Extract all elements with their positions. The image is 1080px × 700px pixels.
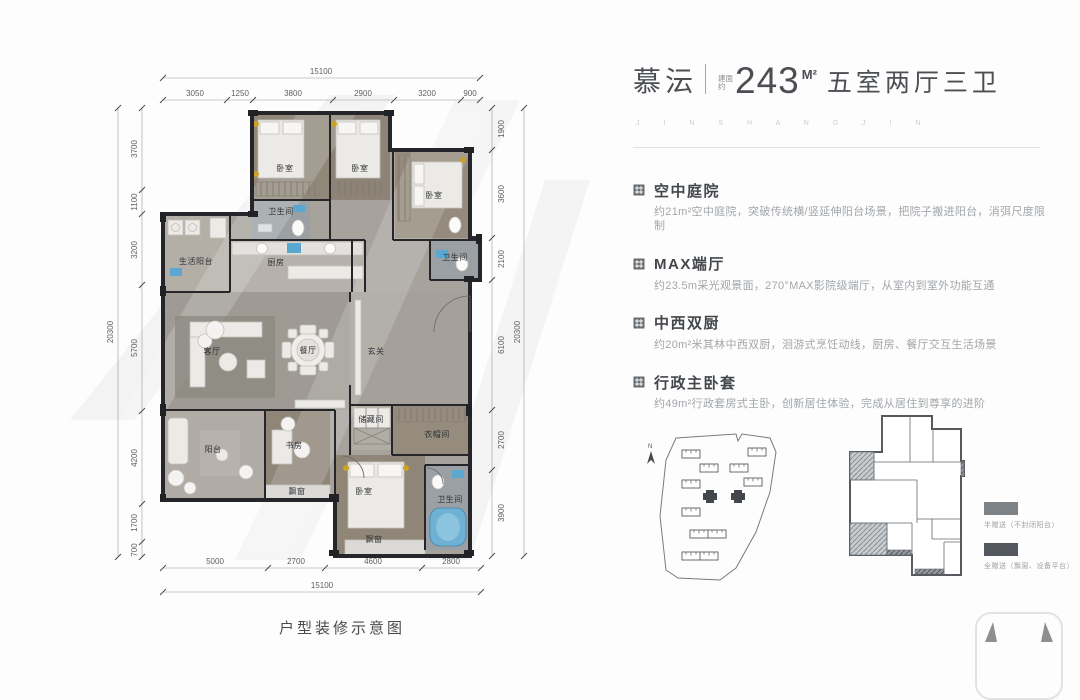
room-label: 书房 <box>286 440 303 450</box>
feature-desc: 约21m²空中庭院，突破传统横/竖延伸阳台场景，把院子搬进阳台，消弭尺度限制 <box>654 205 1053 234</box>
floorplan-drawing: 卧室 卧室 卧室 卫生间 生活阳台 厨房 卫生间 客厅 餐厅 玄关 储藏间 衣帽… <box>60 40 630 620</box>
unit-header: 慕沄 建面约 243 M² 五室两厅三卫 <box>633 64 1001 96</box>
legend-swatch-full <box>984 543 1018 556</box>
room-label: 阳台 <box>205 444 222 454</box>
dim-label: 4200 <box>130 449 139 467</box>
room-label: 客厅 <box>204 346 221 356</box>
site-buildings <box>682 448 766 560</box>
feature-title: MAX端厅 <box>654 253 725 274</box>
legend-label: 全赠送（飘窗、设备平台） <box>984 561 1080 571</box>
section-divider <box>633 147 1040 148</box>
dim-label: 1100 <box>130 193 139 211</box>
room-label: 飘窗 <box>366 534 383 544</box>
dim-label: 3900 <box>497 504 506 522</box>
legend-item: 半赠送（不封闭阳台） <box>984 502 1080 530</box>
room-label: 厨房 <box>268 257 285 267</box>
feature-title: 行政主卧套 <box>654 372 737 393</box>
feature-item: 空中庭院 约21m²空中庭院，突破传统横/竖延伸阳台场景，把院子搬进阳台，消弭尺… <box>633 180 1053 234</box>
feature-list: 空中庭院 约21m²空中庭院，突破传统横/竖延伸阳台场景，把院子搬进阳台，消弭尺… <box>633 180 1053 431</box>
dim-label: 3200 <box>418 89 436 98</box>
feature-item: 中西双厨 约20m²米其林中西双厨，洄游式烹饪动线，厨房、餐厅交互生活场景 <box>633 313 1053 352</box>
room-label: 卧室 <box>426 190 443 200</box>
layout-text: 五室两厅三卫 <box>827 71 1001 96</box>
feature-desc: 约49m²行政套房式主卧，创新居住体验，完成从居住到尊享的进阶 <box>654 397 1053 411</box>
room-label: 衣帽间 <box>424 429 450 439</box>
dim-label: 700 <box>130 543 139 557</box>
lattice-icon <box>633 184 645 196</box>
room-label: 卧室 <box>352 163 369 173</box>
corner-logo-marks <box>983 620 1055 650</box>
dim-label: 6100 <box>497 336 506 354</box>
dim-label: 900 <box>463 89 477 98</box>
room-label: 飘窗 <box>289 486 306 496</box>
plan-caption: 户型装修示意图 <box>247 617 437 638</box>
north-arrow: N <box>647 444 655 464</box>
dim-label: 1900 <box>497 120 506 138</box>
room-label: 卫生间 <box>442 252 468 262</box>
area-prefix: 建面约 <box>718 75 733 92</box>
feature-desc: 约20m²米其林中西双厨，洄游式烹饪动线，厨房、餐厅交互生活场景 <box>654 338 1053 352</box>
dim-label: 1250 <box>231 89 249 98</box>
dim-label: 2100 <box>497 250 506 268</box>
legend-item: 全赠送（飘窗、设备平台） <box>984 543 1080 571</box>
project-name: 慕沄 <box>633 68 697 96</box>
dim-label: 15100 <box>311 581 334 590</box>
dim-label: 2800 <box>442 557 460 566</box>
dim-label: 20300 <box>106 320 115 343</box>
corner-logo <box>975 612 1063 700</box>
legend-label: 半赠送（不封闭阳台） <box>984 520 1080 530</box>
room-label: 卫生间 <box>437 494 463 504</box>
room-label: 玄关 <box>368 346 385 356</box>
dim-label: 3800 <box>284 89 302 98</box>
feature-desc: 约23.5m采光观景面，270°MAX影院级端厅，从室内到室外功能互通 <box>654 279 1053 293</box>
dim-label: 5700 <box>130 339 139 357</box>
floorplan-brochure-page: { "header": { "project_name": "慕沄", "are… <box>0 0 1080 651</box>
lattice-icon <box>633 258 645 270</box>
dim-label: 3050 <box>186 89 204 98</box>
feature-title: 中西双厨 <box>654 312 720 333</box>
dim-label: 5000 <box>206 557 224 566</box>
area-value: 243 <box>735 65 800 96</box>
lattice-icon <box>633 376 645 388</box>
dim-label: 1700 <box>130 514 139 532</box>
legend-swatch-half <box>984 502 1018 515</box>
dim-label: 2900 <box>354 89 372 98</box>
room-label: 卫生间 <box>268 206 294 216</box>
highlighted-building <box>731 490 745 503</box>
header-divider <box>705 64 706 94</box>
room-label: 储藏间 <box>358 414 384 424</box>
siteplan-map: N <box>638 420 803 595</box>
dim-label: 2700 <box>497 431 506 449</box>
keyplan-legend: 半赠送（不封闭阳台） 全赠送（飘窗、设备平台） <box>984 502 1080 584</box>
dim-label: 2700 <box>287 557 305 566</box>
dim-label: 15100 <box>310 67 333 76</box>
keyplan-drawing <box>838 412 978 580</box>
feature-item: 行政主卧套 约49m²行政套房式主卧，创新居住体验，完成从居住到尊享的进阶 <box>633 372 1053 411</box>
watermark-text: J I N S H A N G J I N <box>636 120 932 127</box>
dim-label: 3700 <box>130 140 139 158</box>
room-label: 生活阳台 <box>179 256 213 266</box>
area-unit: M² <box>802 67 817 82</box>
highlighted-building <box>703 490 717 503</box>
feature-title: 空中庭院 <box>654 180 720 201</box>
dim-label: 4600 <box>364 557 382 566</box>
svg-text:N: N <box>648 444 652 450</box>
room-label: 卧室 <box>356 486 373 496</box>
lattice-icon <box>633 317 645 329</box>
feature-item: MAX端厅 约23.5m采光观景面，270°MAX影院级端厅，从室内到室外功能互… <box>633 254 1053 293</box>
dim-label: 3600 <box>497 185 506 203</box>
dim-label: 3200 <box>130 241 139 259</box>
room-label: 餐厅 <box>300 346 317 355</box>
dim-label: 20300 <box>513 320 522 343</box>
room-label: 卧室 <box>277 163 294 173</box>
